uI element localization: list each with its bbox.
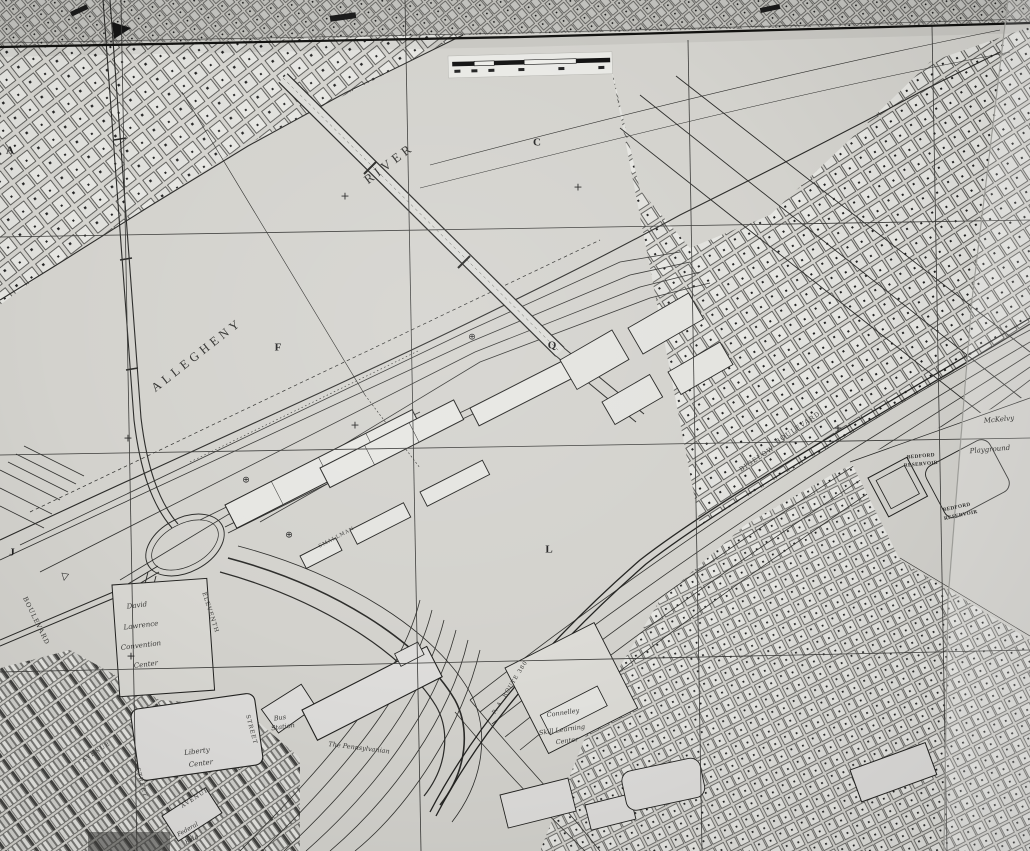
survey-cross-icon: +: [833, 423, 842, 434]
triangle-marker-icon: ▷: [58, 572, 69, 581]
grid-letter-l: L: [545, 545, 552, 556]
grid-letter-j: J: [9, 548, 15, 559]
benchmark-icon: ⊕: [468, 334, 476, 343]
survey-cross-icon: +: [350, 420, 359, 431]
bus-station-label-line1: Bus: [273, 714, 286, 722]
benchmark-icon: ⊕: [285, 532, 293, 541]
benchmark-icon: ⊕: [242, 477, 250, 486]
survey-cross-icon: +: [573, 182, 582, 193]
map-linework: [0, 0, 1030, 851]
survey-cross-icon: +: [126, 651, 135, 662]
grid-letter-c: C: [533, 138, 541, 149]
survey-cross-icon: +: [123, 433, 132, 444]
grid-letter-a: A: [6, 146, 14, 157]
map-scan: ALLEGHENY RIVER A C F Q J L David Lawren…: [0, 0, 1030, 851]
grid-letter-f: F: [275, 343, 282, 354]
survey-cross-icon: +: [340, 191, 349, 202]
grid-letter-q: Q: [548, 341, 557, 352]
scale-bar: [448, 52, 613, 78]
